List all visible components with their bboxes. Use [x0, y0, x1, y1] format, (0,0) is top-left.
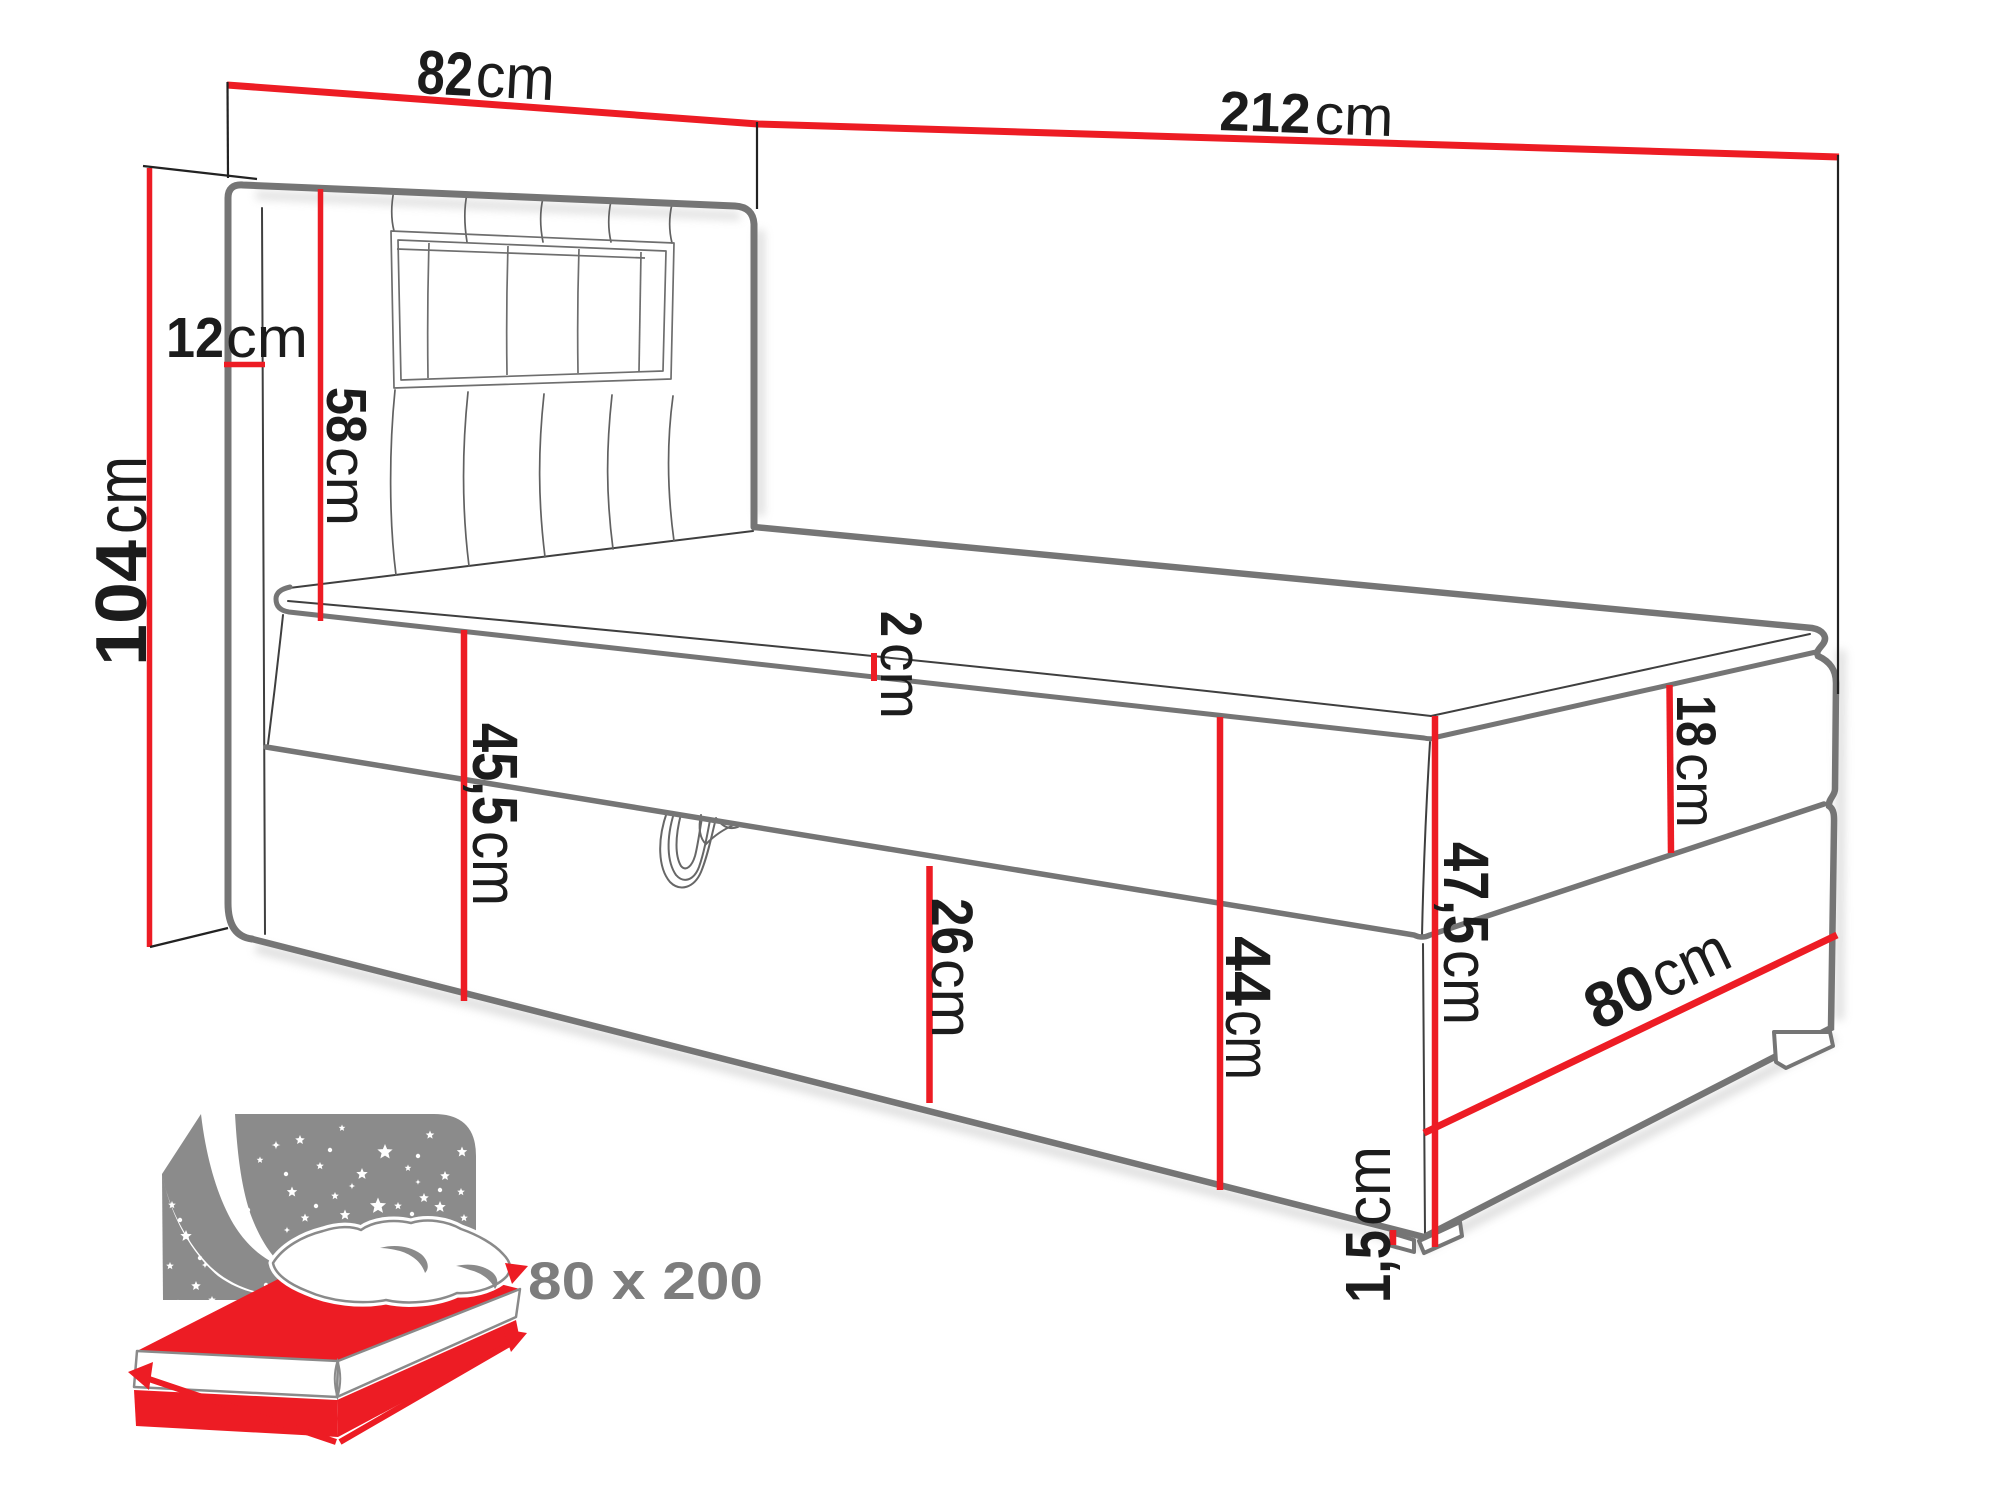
svg-text:47,5cm: 47,5cm — [1430, 842, 1502, 1025]
svg-text:12cm: 12cm — [166, 306, 308, 370]
svg-text:1,5cm: 1,5cm — [1332, 1146, 1404, 1303]
svg-text:58cm: 58cm — [314, 387, 378, 526]
svg-text:45,5cm: 45,5cm — [459, 723, 531, 906]
svg-text:212cm: 212cm — [1219, 79, 1395, 148]
svg-text:82cm: 82cm — [415, 38, 556, 114]
svg-text:2cm: 2cm — [868, 611, 933, 719]
svg-text:26cm: 26cm — [919, 898, 984, 1038]
svg-text:104cm: 104cm — [82, 456, 162, 666]
svg-text:18cm: 18cm — [1665, 695, 1728, 828]
svg-text:80 x 200: 80 x 200 — [528, 1252, 763, 1311]
